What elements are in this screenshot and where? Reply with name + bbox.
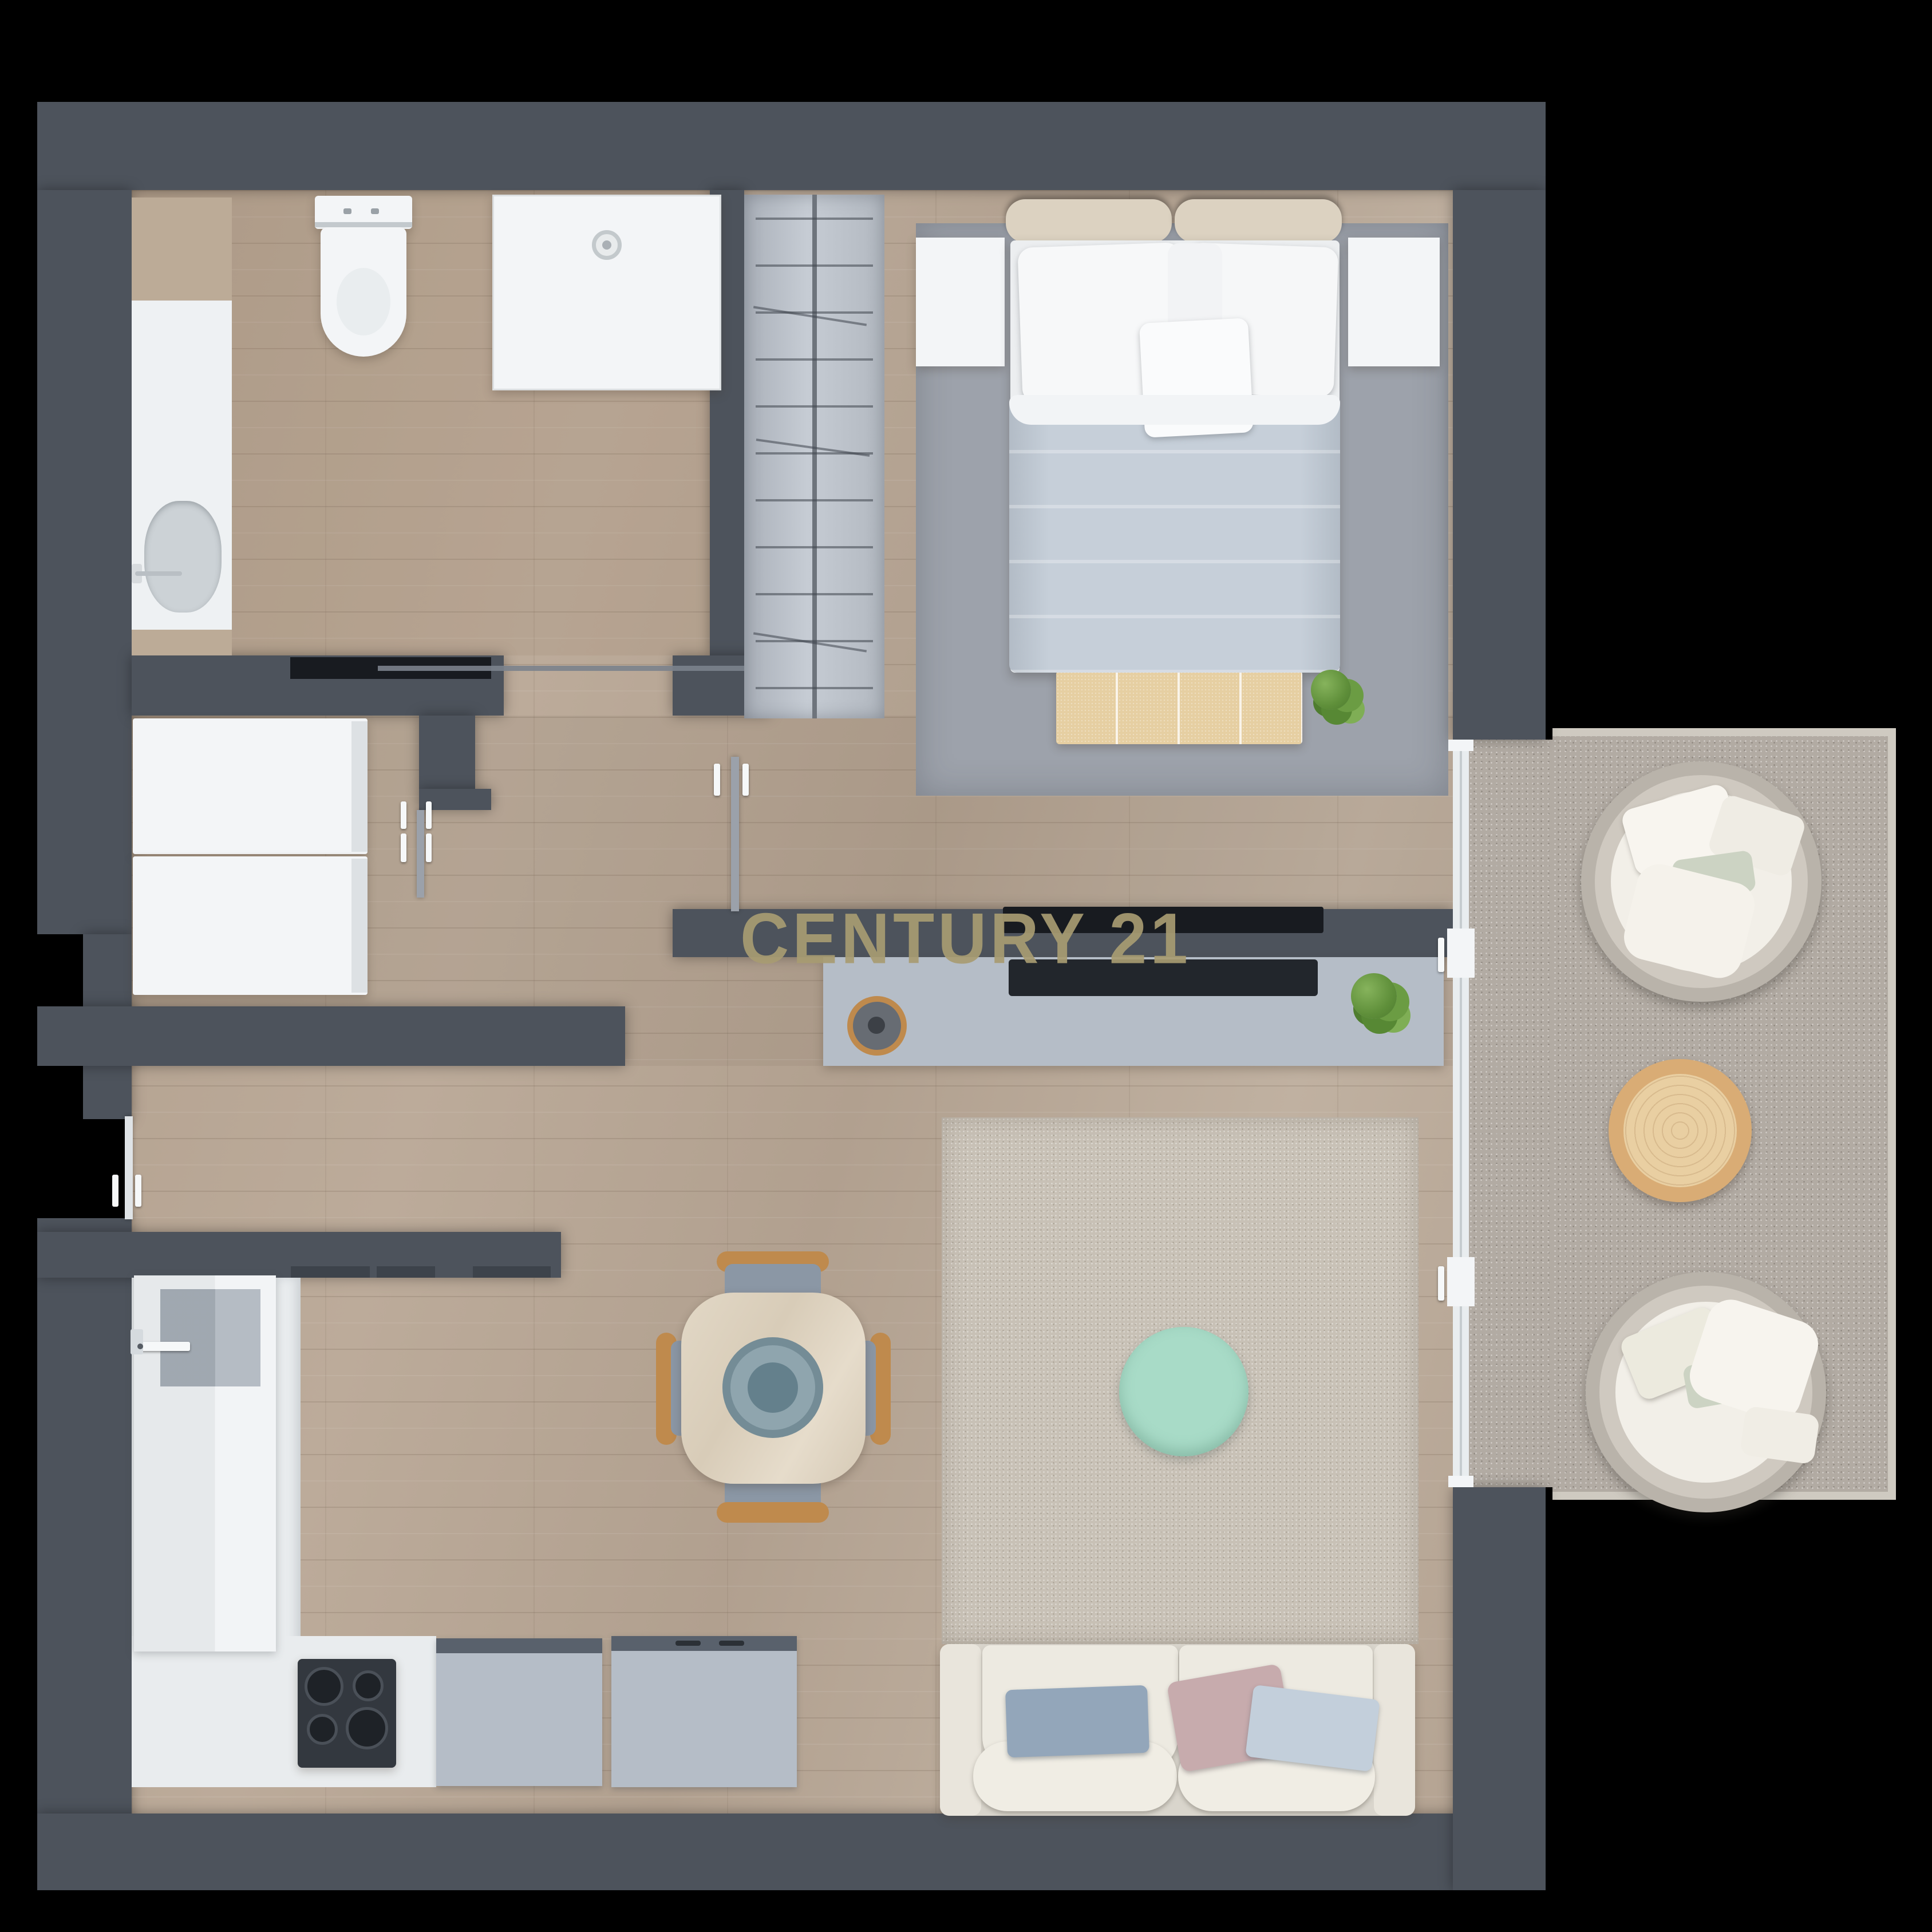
window-handle-block-2 — [1447, 1257, 1475, 1306]
bedroom-door-handle-left — [714, 764, 720, 796]
sink-faucet-spout — [135, 571, 182, 576]
window-frame-cap-bottom — [1448, 1476, 1473, 1487]
unit-handle-1 — [675, 1641, 701, 1646]
bed-duvet — [1009, 395, 1340, 673]
burner-4 — [346, 1707, 388, 1749]
floor-plan-render: CENTURY 21 — [0, 0, 1932, 1932]
wall-hall-bottom — [37, 1006, 625, 1066]
kitchen-door-handle — [136, 1342, 190, 1351]
bedroom-door-handle-right — [742, 764, 749, 796]
utility-door-handle-2 — [426, 801, 432, 829]
unit-top-edge — [611, 1636, 797, 1651]
cooktop — [298, 1659, 396, 1768]
pouf — [1119, 1327, 1249, 1456]
chair-pillow-2 — [1740, 1405, 1820, 1464]
console-plant — [1351, 973, 1397, 1019]
kitchen-door-hinge-block — [131, 1329, 143, 1354]
window-frame-cap-top — [1448, 740, 1473, 751]
utility-door-handle-3 — [401, 833, 406, 862]
washing-machine — [133, 718, 368, 854]
balcony-railing-top — [1552, 728, 1896, 736]
burner-1 — [305, 1667, 343, 1706]
appliance-edge-bottom — [351, 859, 368, 993]
vanity-lower-wood — [132, 630, 232, 655]
kitchen-wall-dash-3 — [473, 1266, 551, 1278]
shower-tray — [492, 195, 721, 390]
decor-tray-center — [868, 1017, 885, 1034]
toilet-cistern-chrome — [315, 222, 412, 227]
wall-right-upper — [1453, 190, 1546, 740]
balcony-window-frame — [1453, 740, 1469, 1487]
balcony-door-handle-2 — [1438, 1266, 1444, 1301]
wall-bottom — [37, 1814, 1546, 1890]
shower-drain-cap — [602, 240, 611, 250]
kitchen-door-handle-rose — [137, 1344, 143, 1349]
utility-door-handle-1 — [401, 801, 406, 829]
wardrobe-hangers — [756, 218, 874, 696]
wall-utility-stub — [419, 716, 475, 790]
headboard-cushion-left — [1006, 199, 1172, 243]
dining-table-plate-center — [748, 1362, 798, 1413]
wall-left-upper — [37, 190, 132, 934]
kitchen-wall-dash-1 — [291, 1266, 370, 1278]
entrance-door-leaf — [125, 1116, 133, 1219]
toilet-flush-button-right — [371, 208, 379, 214]
balcony-coffee-table — [1609, 1059, 1752, 1202]
nightstand-right — [1348, 238, 1440, 366]
kitchen-unit-2 — [611, 1636, 797, 1787]
balcony-door-handle-1 — [1438, 938, 1444, 972]
kitchen-unit-1 — [436, 1638, 602, 1786]
toilet-flush-button-left — [343, 208, 351, 214]
window-handle-block-1 — [1447, 929, 1475, 978]
headboard-cushion-right — [1175, 199, 1342, 243]
bed-duvet-fold — [1009, 395, 1340, 425]
appliance-edge-top — [351, 721, 368, 852]
balcony-lounge-chair-top — [1581, 761, 1822, 1002]
burner-3 — [307, 1714, 338, 1745]
century21-watermark: CENTURY 21 — [740, 898, 1191, 980]
toilet-bowl-inner — [337, 268, 390, 335]
wall-right-lower — [1453, 1487, 1546, 1890]
balcony-railing-right — [1888, 728, 1896, 1500]
burner-2 — [353, 1670, 384, 1701]
kitchen-wall-dash-2 — [377, 1266, 435, 1278]
dryer — [133, 856, 368, 995]
vanity-sink — [144, 501, 222, 613]
entrance-door-handle-inside — [135, 1175, 141, 1207]
utility-door-handle-4 — [426, 833, 432, 862]
dining-chair-bottom-back — [717, 1502, 829, 1523]
sofa-pillow-blue — [1005, 1685, 1149, 1758]
sofa-arm-right — [1374, 1644, 1415, 1816]
unit-top-edge — [436, 1638, 602, 1653]
sofa-arm-left — [940, 1644, 981, 1816]
wardrobe — [744, 195, 884, 718]
vanity-upper-wood — [132, 197, 232, 301]
unit-handle-2 — [719, 1641, 744, 1646]
sofa-pillow-lightblue — [1245, 1685, 1380, 1772]
nightstand-left — [916, 238, 1005, 366]
kitchen-door-glass — [160, 1289, 260, 1386]
wall-top — [37, 102, 1546, 190]
bedroom-door-leaf — [731, 757, 739, 911]
utility-door-leaf — [417, 810, 424, 898]
balcony-lounge-chair-bottom — [1586, 1272, 1826, 1512]
balcony-floor-strip — [1468, 740, 1552, 1487]
wall-left-lower — [37, 1218, 132, 1890]
bench-plant — [1311, 670, 1351, 710]
window-mullion — [1460, 740, 1462, 1487]
entrance-door-handle-outside — [112, 1175, 118, 1207]
bed-bench — [1056, 671, 1302, 744]
